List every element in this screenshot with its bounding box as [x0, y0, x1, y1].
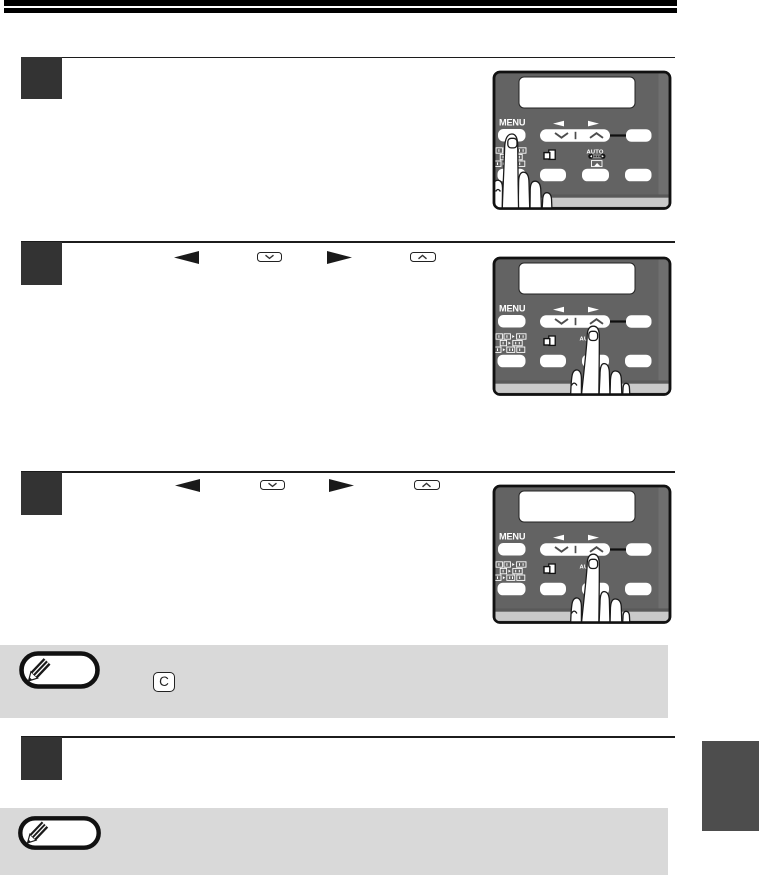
svg-text:MENU: MENU — [499, 532, 526, 542]
svg-text:AUTO: AUTO — [587, 149, 604, 155]
svg-text:MENU: MENU — [499, 118, 526, 128]
svg-text:MENU: MENU — [499, 304, 526, 314]
